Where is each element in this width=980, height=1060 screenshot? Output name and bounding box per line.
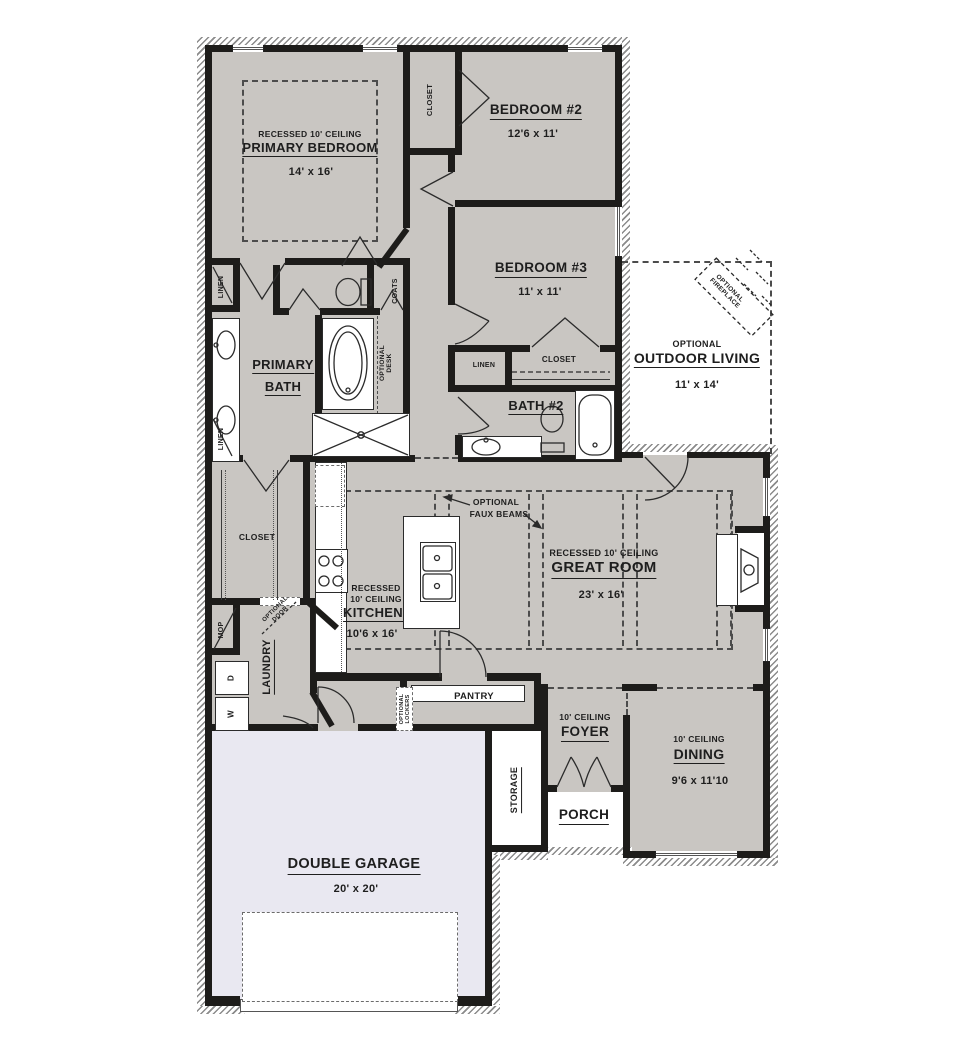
door-leaf [458,397,489,426]
room-note: RECESSED [351,584,400,593]
island-drain [435,584,440,589]
room-note: 10' CEILING [559,713,611,722]
washer-label: W [228,710,237,718]
masonry-dash [750,250,762,262]
room-name-laundry: LAUNDRY [261,639,275,694]
room-name-bedroom2: BEDROOM #2 [490,103,582,120]
faux-beams-label: OPTIONAL [473,498,519,507]
room-name-closet: CLOSET [426,84,434,116]
masonry-dash [756,272,768,284]
angled-wall [309,603,337,628]
door-swing [532,318,599,347]
door-arc [571,757,584,787]
room-name-linen: LINEN [218,276,226,299]
dryer-label: D [228,675,237,681]
room-name-great-room: GREAT ROOM [551,560,656,579]
door-leaf [645,457,675,488]
room-name-primary-bath: PRIMARY [252,358,314,374]
masonry-dash [744,284,756,296]
island-drain [435,556,440,561]
door-swing [342,237,378,266]
tub-basin [329,326,367,400]
door-swing [459,70,489,126]
room-name-bedroom3: BEDROOM #3 [495,261,587,278]
faucet [214,418,218,422]
room-name-closet: CLOSET [239,533,275,542]
room-name-foyer: FOYER [561,725,609,742]
room-name-pantry: PANTRY [454,692,494,702]
burner [319,576,329,586]
room-dims: 11' x 11' [518,286,561,298]
door-swing [421,172,453,206]
island-sink [423,574,452,599]
room-dims: 11' x 14' [675,379,719,391]
door-arc [283,716,313,728]
tub-drain [346,388,350,392]
burner [319,556,329,566]
room-dims: 14' x 16' [289,166,334,178]
room-name-primary-bath: BATH [265,380,301,396]
room-name-bath2: BATH #2 [508,399,563,415]
room-note: OPTIONAL [673,340,722,350]
faucet [214,343,218,347]
optional-desk-label: OPTIONALDESK [379,345,393,381]
door-leaf [557,757,571,787]
toilet [336,279,360,306]
sink [217,331,235,359]
fireplace-flue [744,565,754,575]
room-name-primary-bedroom: PRIMARY BEDROOM [242,141,377,157]
room-name-closet: CLOSET [542,356,576,365]
room-dims: 12'6 x 11' [508,128,558,140]
burner [333,556,343,566]
tub-basin [579,395,611,455]
room-name-kitchen: KITCHEN [343,606,403,622]
annotation-arrowhead [444,495,452,501]
angled-wall [379,229,407,267]
door-swing [289,289,320,310]
room-name-linen: LINEN [473,362,496,370]
door-arc [584,757,597,787]
tub-drain [593,443,597,447]
toilet-tank [361,279,371,305]
door-leaf [597,757,611,787]
room-note: 10' CEILING [673,735,725,744]
room-name-outdoor-living: OUTDOOR LIVING [634,351,760,368]
island-sink [423,546,452,571]
room-name-dining: DINING [674,747,725,764]
tub-basin [334,332,362,394]
room-note: RECESSED 10' CEILING [258,130,361,139]
room-dims: 9'6 x 11'10 [672,775,729,787]
line-art-overlay [0,0,980,1060]
floor-plan: RECESSED 10' CEILING PRIMARY BEDROOM 14'… [0,0,980,1060]
door-arc [455,321,489,344]
room-name-coats: COATS [392,278,400,303]
faux-beams-label: FAUX BEAMS [470,510,529,519]
burner [333,576,343,586]
angled-wall [312,692,332,726]
door-arc [318,687,354,723]
door-arc [440,631,486,677]
door-swing [240,263,285,299]
room-dims: 23' x 16' [579,589,624,601]
room-name-storage: STORAGE [510,767,522,813]
room-dims: 20' x 20' [334,883,379,895]
room-note: 10' CEILING [350,595,402,604]
toilet-tank [541,443,564,452]
masonry-dash [736,258,748,270]
door-arc [458,426,489,434]
door-leaf [455,304,489,321]
room-note: RECESSED 10' CEILING [549,549,658,559]
faucet [484,438,488,442]
room-name-porch: PORCH [559,808,609,825]
room-name-mop: MOP [218,622,226,639]
door-swing [244,460,289,491]
room-name-garage: DOUBLE GARAGE [288,857,421,875]
room-name-linen: LINEN [218,428,226,451]
room-dims: 10'6 x 16' [346,628,397,640]
optional-lockers-label: OPTIONALLOCKERS [399,694,411,725]
